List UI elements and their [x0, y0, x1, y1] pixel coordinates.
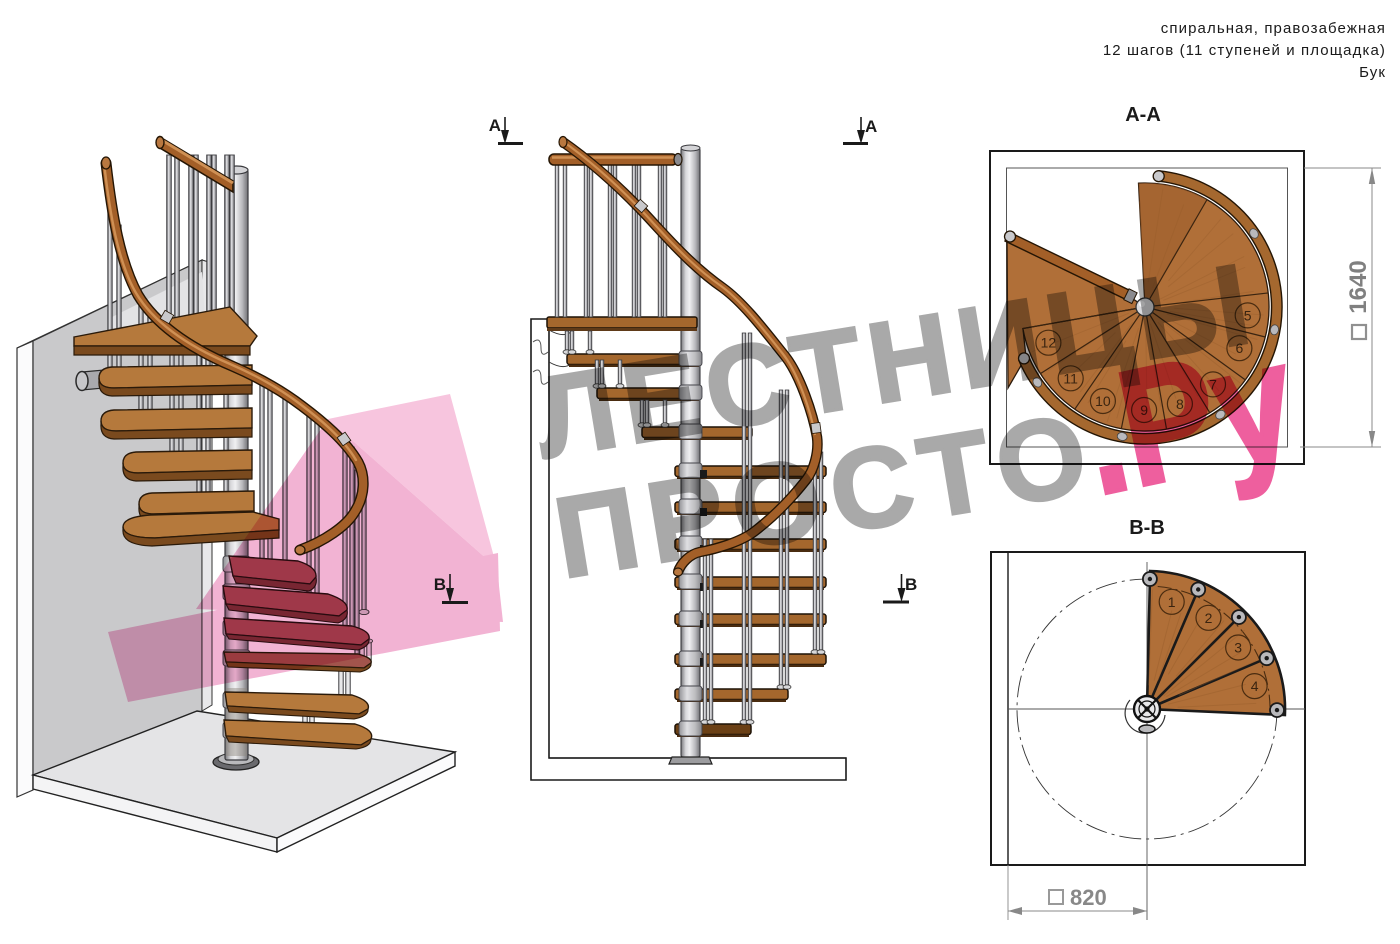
svg-text:2: 2	[1205, 610, 1213, 626]
svg-text:B: B	[905, 575, 917, 594]
svg-text:A: A	[865, 117, 877, 136]
svg-text:4: 4	[1251, 678, 1259, 694]
svg-text:1: 1	[1168, 594, 1176, 610]
svg-text:820: 820	[1070, 885, 1107, 910]
svg-text:A-A: A-A	[1125, 104, 1161, 126]
svg-text:3: 3	[1234, 640, 1242, 656]
svg-text:B: B	[434, 575, 446, 594]
svg-text:Бук: Бук	[1359, 64, 1386, 81]
svg-text:спиральная, правозабежная: спиральная, правозабежная	[1161, 20, 1386, 37]
svg-text:12 шагов (11 ступеней и площад: 12 шагов (11 ступеней и площадка)	[1103, 42, 1386, 59]
svg-text:1640: 1640	[1345, 260, 1372, 313]
svg-text:A: A	[489, 116, 501, 135]
